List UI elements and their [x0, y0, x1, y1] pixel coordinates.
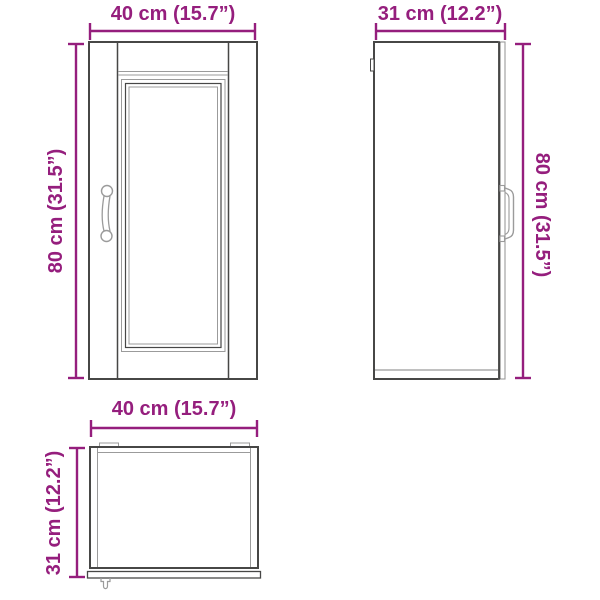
top-cabinet-outline — [90, 447, 258, 568]
top-view — [69, 420, 261, 589]
front-cabinet-outline — [89, 42, 257, 379]
side-height-dimension-label: 80 cm (31.5”) — [530, 115, 554, 315]
top-width-dimension-line — [91, 420, 257, 437]
front-view — [68, 23, 257, 379]
side-depth-dimension-label: 31 cm (12.2”) — [355, 2, 525, 26]
side-cabinet-outline — [374, 42, 499, 379]
top-door-handle-icon — [101, 578, 110, 589]
side-hinge-icon — [371, 59, 375, 71]
top-depth-dimension-label: 31 cm (12.2”) — [42, 413, 66, 600]
front-height-dimension-label: 80 cm (31.5”) — [44, 111, 68, 311]
side-view — [371, 23, 532, 379]
side-height-dimension-line — [515, 44, 531, 378]
top-width-dimension-label: 40 cm (15.7”) — [89, 397, 259, 421]
front-height-dimension-line — [68, 44, 84, 378]
top-depth-dimension-line — [69, 448, 85, 577]
top-door-strip — [88, 572, 261, 579]
line-art — [0, 0, 600, 600]
dimension-diagram: 40 cm (15.7”) 80 cm (31.5”) 31 cm (12.2”… — [0, 0, 600, 600]
front-width-dimension-label: 40 cm (15.7”) — [88, 2, 258, 26]
